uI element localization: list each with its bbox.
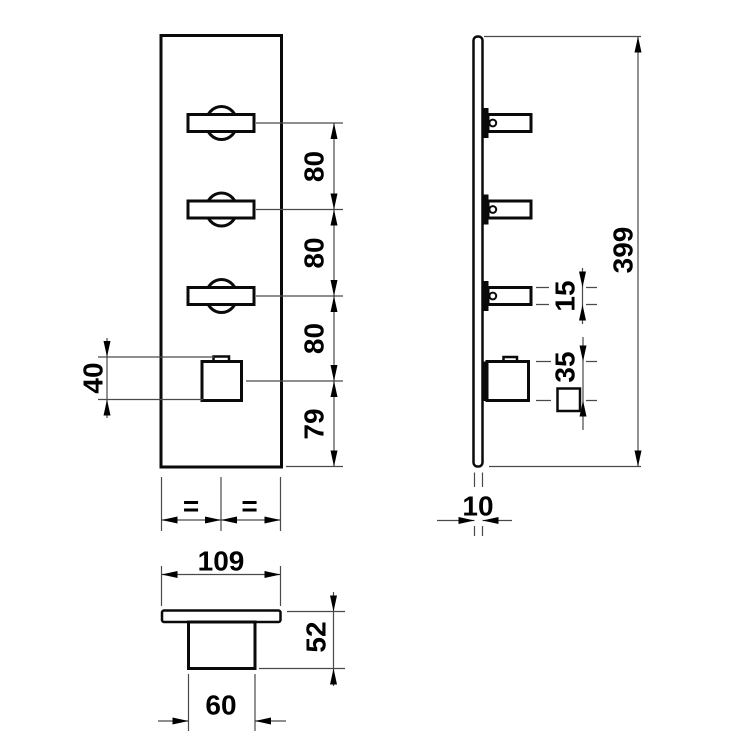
- handle-3-pin: [489, 293, 496, 300]
- bottom-dimension-60: 60: [158, 674, 286, 731]
- dim-label-35: 35: [550, 351, 581, 382]
- side-plate-outline: [474, 37, 483, 467]
- handle-1-side: [483, 108, 531, 138]
- arrowhead: [330, 669, 337, 685]
- bottom-plate-outline: [162, 611, 281, 623]
- front-view: 80 80 80 79 40 = =: [78, 36, 344, 532]
- technical-drawing-page: 80 80 80 79 40 = =: [0, 0, 750, 750]
- dim-label-60: 60: [205, 690, 236, 721]
- dim-label-79: 79: [299, 408, 330, 439]
- dim-label-40: 40: [78, 362, 109, 393]
- arrowhead: [104, 341, 111, 357]
- arrowhead: [331, 451, 338, 467]
- arrowhead: [255, 718, 271, 725]
- arrowhead: [173, 718, 189, 725]
- knob-body-side: [487, 362, 529, 401]
- dimension-drawing: 80 80 80 79 40 = =: [0, 0, 750, 750]
- dim-label-80-1: 80: [299, 151, 330, 182]
- handle-3-side: [483, 281, 531, 311]
- bottom-dimension-52: 52: [259, 592, 345, 686]
- arrowhead: [331, 123, 338, 139]
- arrowhead: [265, 571, 281, 578]
- knob-front: [202, 357, 242, 401]
- handle-2-lever: [188, 201, 254, 218]
- arrowhead: [265, 517, 281, 524]
- bottom-knob-block: [189, 622, 256, 669]
- arrowhead: [162, 571, 178, 578]
- dim-label-80-3: 80: [299, 323, 330, 354]
- front-plate-outline: [161, 36, 282, 468]
- arrowhead: [162, 517, 178, 524]
- extension-lines: [162, 477, 281, 531]
- bottom-view: 109 52 60: [158, 546, 345, 732]
- dim-label-109: 109: [198, 546, 245, 577]
- dim-label-80-2: 80: [299, 237, 330, 268]
- side-dimension-10: 10: [437, 473, 512, 537]
- dim-label-15: 15: [550, 280, 581, 311]
- handle-3-lever: [188, 288, 254, 305]
- side-dimension-15: 15: [536, 268, 597, 324]
- arrowhead: [635, 37, 642, 53]
- dim-label-equal-right: =: [241, 491, 257, 522]
- side-dimension-35: 35: [536, 337, 597, 430]
- dim-label-equal-left: =: [183, 491, 199, 522]
- handle-2-side: [483, 195, 531, 225]
- handle-1-pin: [489, 120, 496, 127]
- arrowhead: [580, 346, 587, 362]
- front-equal-dimension: = =: [162, 477, 281, 531]
- square-section-symbol: [558, 389, 581, 412]
- side-view: 399 15 35 10: [437, 37, 642, 537]
- arrowhead: [330, 596, 337, 612]
- knob-side: [483, 357, 529, 401]
- handle-1-lever: [188, 115, 254, 132]
- bottom-dimension-109: 109: [162, 546, 281, 607]
- dim-label-399: 399: [608, 227, 639, 274]
- dim-label-52: 52: [301, 621, 332, 652]
- dim-label-10: 10: [462, 491, 493, 522]
- knob-body: [202, 362, 242, 401]
- arrowhead: [104, 400, 111, 416]
- arrowhead: [635, 451, 642, 467]
- handle-2-pin: [489, 206, 496, 213]
